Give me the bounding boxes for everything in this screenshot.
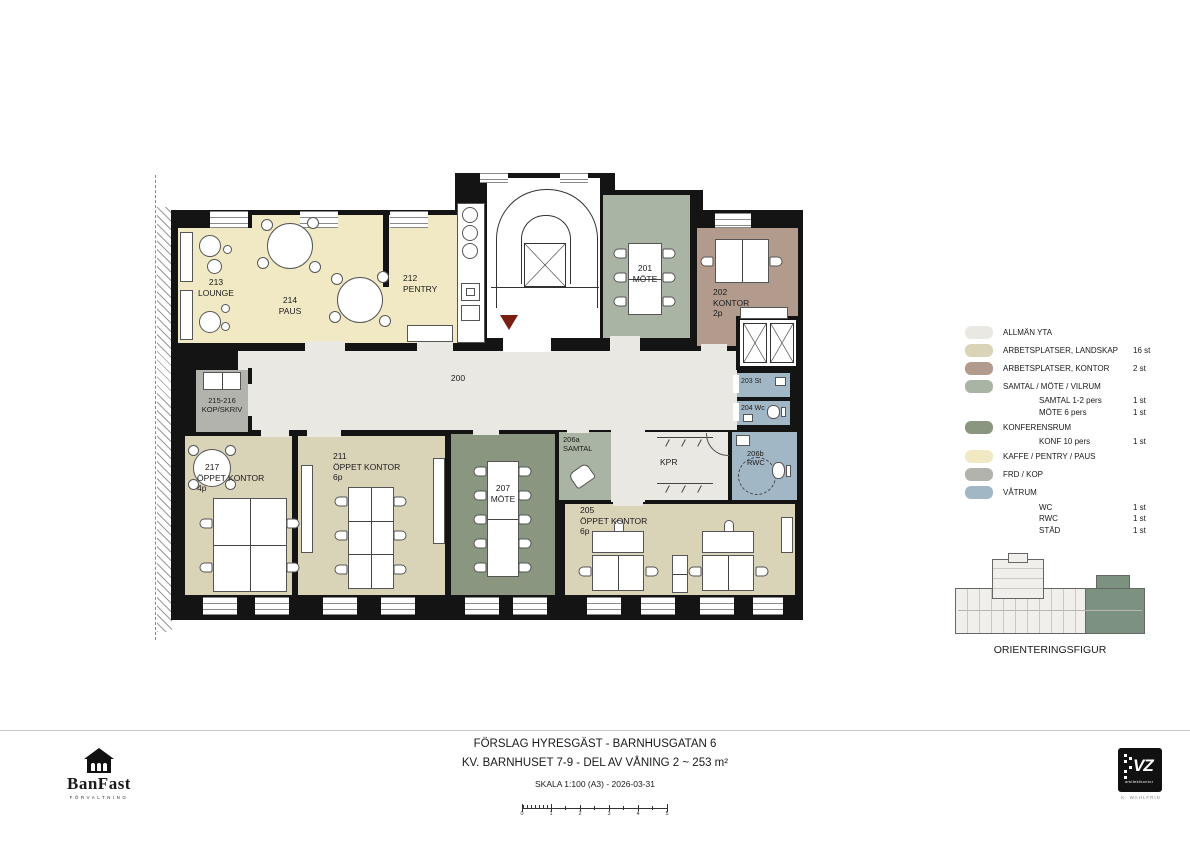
label-213: 213LOUNGE	[185, 277, 247, 298]
shelf	[775, 377, 786, 386]
chair	[701, 257, 714, 267]
window	[323, 597, 357, 615]
chair	[663, 297, 676, 307]
entrance-arrow	[500, 315, 518, 330]
legend-row: KAFFE / PENTRY / PAUS	[965, 448, 1165, 466]
label-206b: 206bRWC	[747, 449, 765, 468]
scale-tick-label: 5	[661, 811, 673, 817]
chair	[335, 497, 348, 507]
legend-row: KONFERENSRUM	[965, 418, 1165, 436]
chair	[331, 273, 343, 285]
chair	[474, 467, 487, 477]
chair	[200, 563, 213, 573]
vz-name: VZ	[1133, 756, 1153, 776]
legend-label: SAMTAL 1-2 pers	[1039, 396, 1133, 405]
door-stair-entrance	[503, 333, 551, 352]
desk-cluster-2x3	[348, 487, 394, 589]
window	[210, 211, 248, 228]
chair	[689, 567, 702, 577]
chair	[335, 565, 348, 575]
door-201	[610, 336, 640, 352]
legend-label: KAFFE / PENTRY / PAUS	[1003, 452, 1133, 461]
orientation-midline	[958, 610, 1142, 611]
elevator-2-icon	[770, 323, 794, 363]
scale-tick-label: 1	[545, 811, 557, 817]
window	[587, 597, 621, 615]
toilet-icon	[767, 405, 780, 419]
legend-row: ALLMÄN YTA	[965, 323, 1165, 341]
chair	[257, 257, 269, 269]
legend-row-sub: KONF 10 pers1 st	[965, 436, 1165, 448]
window	[203, 597, 237, 615]
door-217	[261, 428, 289, 437]
legend-swatch	[965, 421, 993, 434]
label-204: 204 Wc	[741, 405, 765, 414]
coat-rack	[657, 483, 713, 493]
desk-pair	[592, 555, 644, 591]
chair	[614, 297, 627, 307]
scale-bar: 0 1 2 3 4 5	[522, 803, 668, 819]
legend-label: ARBETSPLATSER, LANDSKAP	[1003, 346, 1133, 355]
chair	[394, 497, 407, 507]
chair	[225, 445, 236, 456]
title-line-1: FÖRSLAG HYRESGÄST - BARNHUSGATAN 6	[295, 738, 895, 750]
window	[390, 211, 428, 228]
door-pentry	[417, 341, 453, 352]
window	[300, 211, 338, 228]
door-211	[307, 428, 341, 437]
elevator-1-icon	[743, 323, 767, 363]
legend-count: 1 st	[1133, 526, 1165, 535]
corridor-200	[238, 351, 737, 430]
label-202: 202KONTOR2p	[713, 287, 749, 319]
legend-label: STÄD	[1039, 526, 1133, 535]
floor-plan: 200 213LOUNGE 214PAUS 212PENTRY 201MÖTE …	[155, 165, 815, 650]
lounge-chair	[207, 259, 222, 274]
legend-count: 1 st	[1133, 408, 1165, 417]
legend-row-sub: WC1 st	[965, 502, 1165, 514]
window	[560, 173, 588, 183]
vz-logo: VZ arkitektkontor K. WAHLFRID	[1118, 748, 1164, 800]
title-line-2: KV. BARNHUSET 7-9 - DEL AV VÅNING 2 ~ 25…	[295, 757, 895, 769]
legend-swatch	[965, 380, 993, 393]
corridor-branch	[611, 428, 645, 502]
chair	[335, 531, 348, 541]
legend-label: ARBETSPLATSER, KONTOR	[1003, 364, 1133, 373]
legend-swatch	[965, 362, 993, 375]
window	[255, 597, 289, 615]
legend-count: 1 st	[1133, 437, 1165, 446]
chair	[377, 271, 389, 283]
side-table	[221, 304, 230, 313]
drawing-sheet: 200 213LOUNGE 214PAUS 212PENTRY 201MÖTE …	[0, 0, 1190, 841]
legend-count: 16 st	[1133, 346, 1165, 355]
legend-row-sub: SAMTAL 1-2 pers1 st	[965, 395, 1165, 407]
door-206a	[567, 428, 589, 433]
scale-tick-label: 0	[516, 811, 528, 817]
banfast-logo: BanFast FÖRVALTNING	[44, 748, 154, 800]
lounge-chair	[199, 311, 221, 333]
label-215-216: 215-216KOP/SKRIV	[193, 396, 251, 415]
window	[753, 597, 783, 615]
window	[700, 597, 734, 615]
lounge-chair	[199, 235, 221, 257]
hob-icon	[462, 207, 478, 223]
legend-label: VÅTRUM	[1003, 488, 1133, 497]
toilet-icon	[772, 462, 785, 479]
legend-label: FRD / KOP	[1003, 470, 1133, 479]
legend-row-sub: STÄD1 st	[965, 525, 1165, 537]
bench	[407, 325, 453, 342]
chair	[519, 467, 532, 477]
banfast-name: BanFast	[44, 774, 154, 794]
vz-person: K. WAHLFRID	[1118, 795, 1164, 800]
legend-swatch	[965, 326, 993, 339]
vz-logo-box: VZ arkitektkontor	[1118, 748, 1162, 792]
legend-row: FRD / KOP	[965, 466, 1165, 484]
scale-tick-label: 2	[574, 811, 586, 817]
door-202	[701, 344, 727, 352]
legend-label: RWC	[1039, 514, 1133, 523]
side-table	[221, 322, 230, 331]
chair	[394, 565, 407, 575]
legend-count: 1 st	[1133, 396, 1165, 405]
toilet-tank	[781, 407, 786, 417]
scale-tick-label: 3	[603, 811, 615, 817]
wall-215-stub-top	[248, 368, 252, 384]
legend-label: KONF 10 pers	[1039, 437, 1133, 446]
property-boundary-line	[155, 175, 156, 640]
chair	[519, 515, 532, 525]
banfast-subtitle: FÖRVALTNING	[44, 795, 154, 800]
desk-cluster-2x2	[213, 498, 287, 592]
coat-rack	[657, 437, 713, 447]
chair	[474, 563, 487, 573]
label-206a: 206aSAMTAL	[563, 435, 592, 454]
desk	[702, 531, 754, 553]
title-line-3: SKALA 1:100 (A3) - 2026-03-31	[295, 779, 895, 789]
label-211: 211ÖPPET KONTOR6p	[333, 451, 400, 483]
window	[513, 597, 547, 615]
label-217: 217ÖPPET KONTOR4p	[197, 462, 264, 494]
cabinet	[301, 465, 313, 553]
legend: ALLMÄN YTA ARBETSPLATSER, LANDSKAP16 st …	[965, 323, 1165, 536]
chair	[307, 217, 319, 229]
hob-icon	[462, 225, 478, 241]
legend-row-sub: RWC1 st	[965, 513, 1165, 525]
window	[715, 213, 751, 228]
cabinet	[433, 458, 445, 544]
wall-hatch	[157, 207, 172, 632]
label-203: 203 St	[741, 378, 761, 387]
legend-label: MÖTE 6 pers	[1039, 408, 1133, 417]
orientation-wing	[992, 559, 1044, 599]
chair	[770, 257, 783, 267]
orientation-highlight	[1085, 588, 1145, 634]
chair	[379, 315, 391, 327]
desk-pair	[702, 555, 754, 591]
legend-swatch	[965, 468, 993, 481]
legend-row-sub: MÖTE 6 pers1 st	[965, 407, 1165, 419]
chair	[474, 539, 487, 549]
label-205: 205ÖPPET KONTOR6p	[580, 505, 647, 537]
label-214: 214PAUS	[260, 295, 320, 316]
label-kpr: KPR	[660, 457, 677, 468]
label-201: 201MÖTE	[610, 263, 680, 284]
legend-label: WC	[1039, 503, 1133, 512]
copy-machine	[203, 372, 241, 390]
legend-row: SAMTAL / MÖTE / VILRUM	[965, 377, 1165, 395]
chair	[646, 567, 659, 577]
chair	[474, 515, 487, 525]
door-203	[733, 375, 739, 393]
label-212: 212PENTRY	[403, 273, 437, 294]
scale-hatch	[523, 805, 551, 809]
side-table	[223, 245, 232, 254]
hob-icon	[462, 243, 478, 259]
chair	[200, 519, 213, 529]
round-table	[267, 223, 313, 269]
legend-label: ALLMÄN YTA	[1003, 328, 1133, 337]
vz-subtitle: arkitektkontor	[1125, 780, 1153, 784]
kitchen-counter	[457, 203, 485, 343]
chair	[329, 311, 341, 323]
chair	[394, 531, 407, 541]
chair	[309, 261, 321, 273]
washbasin-icon	[743, 414, 753, 422]
chair	[663, 249, 676, 259]
conference-table	[487, 461, 519, 577]
scale-tick-label: 4	[632, 811, 644, 817]
legend-label: KONFERENSRUM	[1003, 423, 1133, 432]
orientation-tower	[1008, 553, 1028, 563]
door-paus	[305, 341, 345, 352]
legend-row: ARBETSPLATSER, LANDSKAP16 st	[965, 341, 1165, 359]
window	[641, 597, 675, 615]
banfast-house-icon	[84, 748, 114, 774]
window	[480, 173, 508, 183]
wall-215-stub-bottom	[248, 416, 252, 432]
legend-swatch	[965, 450, 993, 463]
window	[465, 597, 499, 615]
desk-pair	[715, 239, 769, 283]
cabinet	[672, 555, 688, 593]
stair-landing-line	[491, 287, 599, 288]
sink-basin	[466, 288, 475, 296]
washbasin-icon	[736, 435, 750, 446]
chair	[756, 567, 769, 577]
chair	[614, 249, 627, 259]
legend-count: 1 st	[1133, 514, 1165, 523]
chair	[287, 519, 300, 529]
window	[381, 597, 415, 615]
orientation-label: ORIENTERINGSFIGUR	[950, 644, 1150, 656]
legend-count: 1 st	[1133, 503, 1165, 512]
legend-swatch	[965, 486, 993, 499]
legend-label: SAMTAL / MÖTE / VILRUM	[1003, 382, 1133, 391]
chair	[287, 563, 300, 573]
dishwasher-icon	[461, 305, 480, 321]
label-200: 200	[440, 373, 476, 384]
chair	[519, 539, 532, 549]
chair	[579, 567, 592, 577]
door-207	[473, 428, 499, 435]
chair	[519, 563, 532, 573]
legend-row: ARBETSPLATSER, KONTOR2 st	[965, 359, 1165, 377]
label-207: 207MÖTE	[471, 483, 535, 504]
sofa	[180, 232, 193, 282]
round-table	[337, 277, 383, 323]
legend-swatch	[965, 344, 993, 357]
footer-divider	[0, 730, 1190, 731]
whiteboard	[781, 517, 793, 553]
chair	[261, 219, 273, 231]
legend-row: VÅTRUM	[965, 484, 1165, 502]
toilet-tank	[786, 465, 791, 477]
stair-core	[524, 243, 566, 287]
door-204	[733, 403, 739, 421]
legend-count: 2 st	[1133, 364, 1165, 373]
